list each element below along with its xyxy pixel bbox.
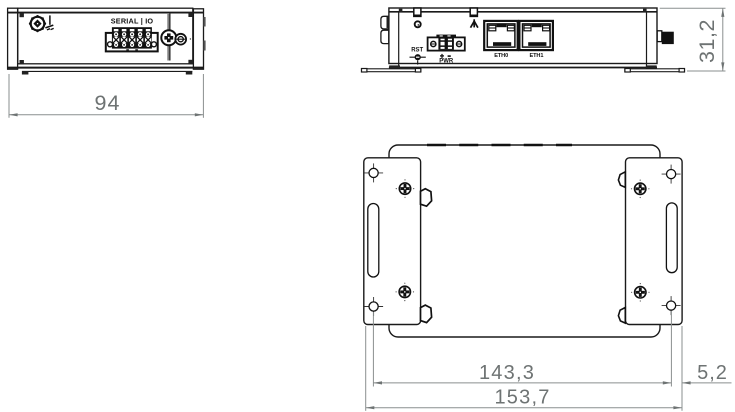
svg-text:153,7: 153,7 — [494, 386, 550, 408]
svg-text:ETH1: ETH1 — [529, 53, 543, 59]
svg-text:SERIAL | IO: SERIAL | IO — [111, 17, 154, 26]
svg-text:5,2: 5,2 — [697, 362, 728, 384]
svg-text:31,2: 31,2 — [695, 19, 719, 63]
svg-text:94: 94 — [95, 91, 121, 115]
svg-text:143,3: 143,3 — [479, 362, 535, 384]
svg-text:RST: RST — [411, 47, 423, 53]
svg-text:ETH0: ETH0 — [494, 53, 508, 59]
svg-text:PWR: PWR — [439, 59, 454, 65]
